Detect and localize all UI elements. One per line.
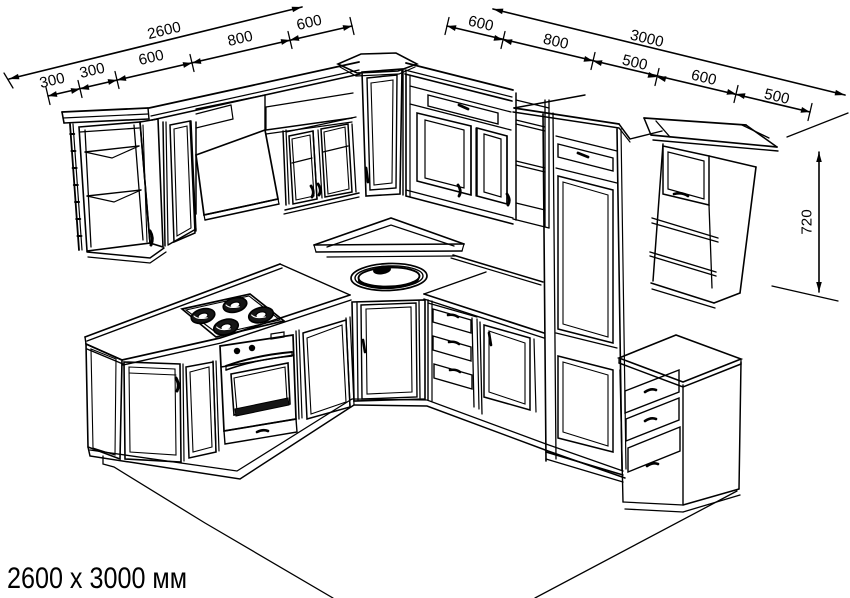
svg-text:600: 600	[295, 12, 324, 34]
svg-text:600: 600	[690, 67, 719, 89]
svg-text:800: 800	[226, 28, 255, 50]
svg-text:3000: 3000	[628, 27, 665, 51]
svg-text:2600: 2600	[146, 19, 183, 43]
svg-text:720: 720	[798, 209, 815, 234]
svg-text:2600 х 3000 мм: 2600 х 3000 мм	[7, 562, 187, 595]
svg-text:500: 500	[621, 52, 650, 74]
svg-text:500: 500	[763, 86, 792, 108]
svg-text:300: 300	[38, 70, 67, 92]
svg-text:300: 300	[78, 60, 107, 82]
svg-text:600: 600	[137, 47, 166, 69]
